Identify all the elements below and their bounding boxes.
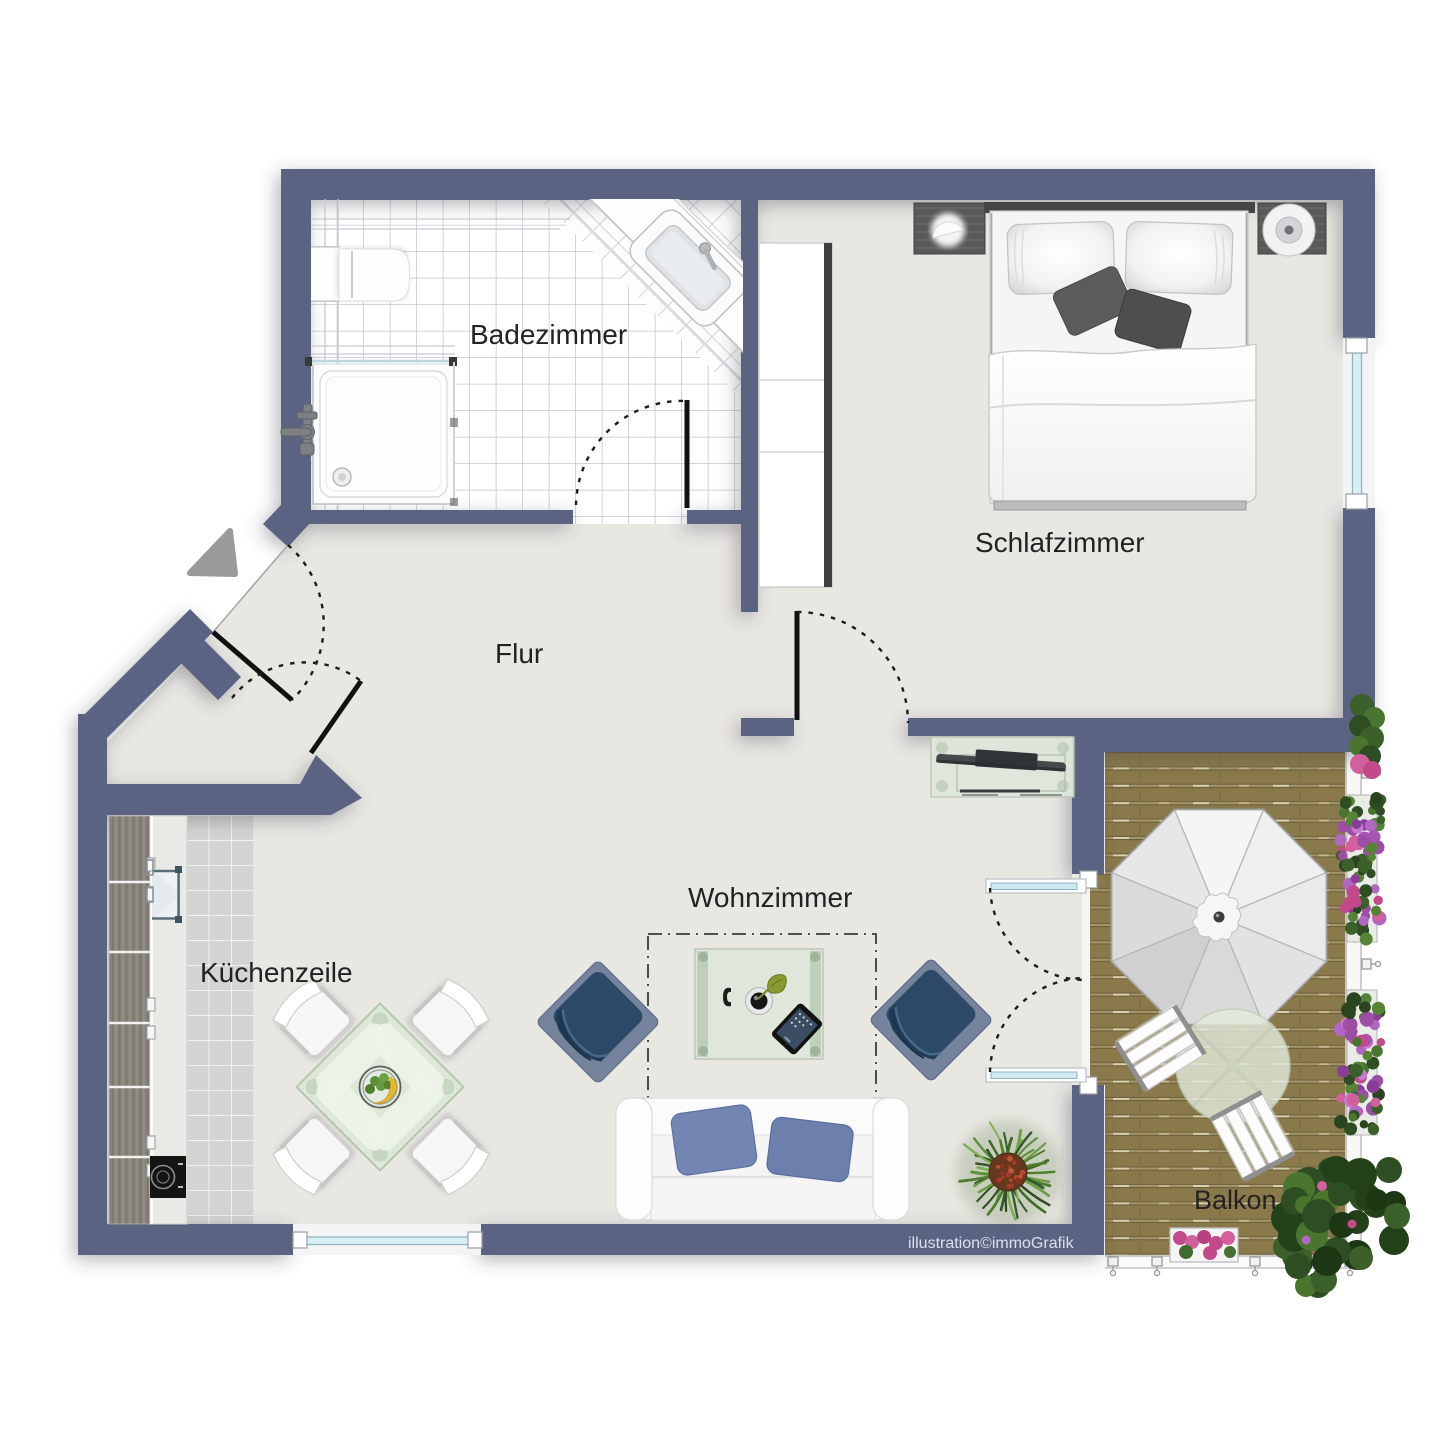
svg-text:Schlafzimmer: Schlafzimmer bbox=[975, 527, 1145, 558]
svg-text:Badezimmer: Badezimmer bbox=[470, 319, 627, 350]
svg-text:Küchenzeile: Küchenzeile bbox=[200, 957, 353, 988]
svg-text:Wohnzimmer: Wohnzimmer bbox=[688, 882, 852, 913]
svg-text:Balkon: Balkon bbox=[1194, 1185, 1277, 1215]
svg-text:illustration©immoGrafik: illustration©immoGrafik bbox=[908, 1235, 1075, 1252]
svg-text:Flur: Flur bbox=[495, 638, 543, 669]
